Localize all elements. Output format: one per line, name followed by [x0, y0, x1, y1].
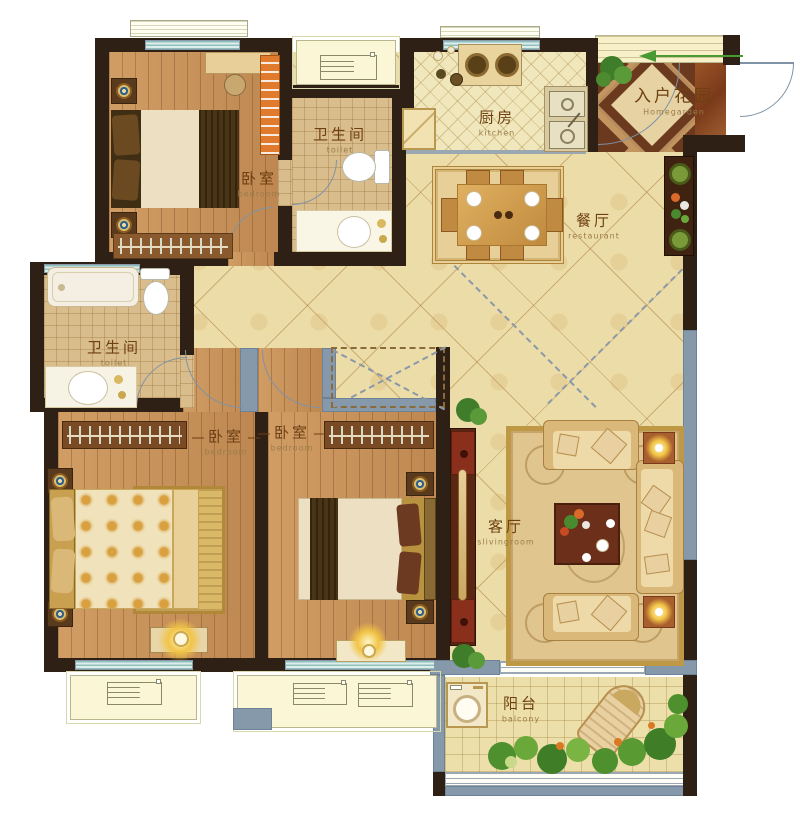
ac-unit-icon	[293, 683, 347, 705]
wall-segment	[95, 38, 109, 266]
balcony-sill	[445, 786, 697, 796]
reserved-cabinet-dashed-box	[331, 347, 445, 408]
bed-blanket	[199, 110, 239, 208]
room-label-homegarden: 入户花园Homegarden	[634, 82, 714, 117]
drum-icon	[453, 695, 481, 723]
room-subtitle: bedroom	[254, 444, 330, 453]
cup-icon	[596, 539, 609, 552]
room-label-bedroom-left: 卧室bedroom	[188, 426, 264, 457]
dining-table	[457, 184, 547, 246]
control-panel-icon	[473, 686, 483, 689]
ac-knob-icon	[156, 679, 161, 684]
ac-unit-icon	[358, 683, 413, 707]
bathroom-vanity	[296, 210, 392, 252]
sink-basin	[68, 371, 108, 405]
toilet-tank	[374, 150, 390, 184]
bed	[298, 498, 436, 600]
window	[683, 330, 697, 560]
kitchen-item	[433, 51, 443, 61]
bay-window-sill	[440, 26, 540, 38]
plant	[514, 736, 538, 760]
flower-icon	[681, 215, 689, 223]
plant	[596, 72, 611, 87]
toilet-bowl	[143, 281, 169, 315]
room-label-kitchen: 厨房kitchen	[479, 107, 515, 138]
plate-icon	[524, 191, 540, 207]
plant	[468, 652, 485, 669]
kitchen-item	[436, 69, 446, 79]
room-name: 卧室	[254, 424, 330, 442]
wall-segment	[180, 262, 194, 355]
table-lamp-icon	[173, 631, 189, 647]
bed	[111, 110, 239, 208]
fridge	[402, 108, 436, 150]
knob-icon	[460, 618, 468, 626]
pillar	[233, 708, 272, 730]
decor	[377, 219, 386, 228]
decor	[379, 235, 387, 243]
flower-icon	[671, 209, 681, 219]
decor	[118, 391, 126, 399]
flower-icon	[560, 527, 569, 536]
washing-machine	[446, 682, 488, 728]
plate-icon	[466, 225, 482, 241]
room-subtitle: balcony	[502, 715, 540, 724]
plant	[668, 694, 688, 714]
room-name: 客厅	[488, 518, 524, 536]
room-name: 卧室	[241, 170, 277, 188]
room-subtitle: bedroom	[188, 448, 264, 457]
bathroom-vanity	[45, 366, 137, 408]
room-name: 阳台	[503, 695, 539, 713]
room-subtitle: Homegarden	[634, 108, 714, 117]
flower-icon	[574, 509, 584, 519]
burner-icon	[495, 53, 519, 77]
plant	[614, 66, 632, 84]
stool	[224, 74, 246, 96]
kitchen-sink-unit	[544, 86, 588, 152]
entry-door-arc	[740, 63, 794, 117]
burner-icon	[465, 53, 489, 77]
wall-segment	[433, 772, 445, 796]
wall-segment	[292, 85, 406, 98]
drain-icon	[561, 98, 574, 111]
plant	[664, 714, 688, 738]
pillow	[50, 496, 75, 541]
pillow	[396, 551, 422, 595]
cup-icon	[606, 519, 615, 528]
knob-icon	[460, 450, 468, 458]
wardrobe	[324, 421, 434, 449]
room-subtitle: bedroom	[238, 190, 281, 199]
plate-icon	[466, 191, 482, 207]
room-name: 卫生间	[87, 339, 141, 357]
faucet-icon	[58, 284, 65, 291]
entry-arrow-line	[655, 55, 743, 57]
pillow	[112, 114, 141, 156]
flower-icon	[582, 521, 590, 529]
bathtub	[47, 267, 139, 307]
room-label-toilet-top: 卫生间toilet	[313, 124, 367, 155]
pillow	[556, 433, 579, 456]
pillow	[556, 600, 579, 623]
stove	[458, 44, 522, 86]
wall-segment	[683, 560, 697, 675]
cabinet-panel	[451, 599, 475, 643]
room-name: 入户花园	[634, 87, 714, 107]
entry-arrow-icon	[639, 50, 656, 62]
room-label-bedroom-mid: 卧室bedroom	[254, 422, 330, 453]
ac-knob-icon	[370, 52, 375, 57]
dining-chair	[546, 198, 563, 232]
pillow	[50, 548, 75, 593]
dining-chair	[500, 244, 524, 260]
wardrobe	[113, 233, 233, 259]
room-subtitle: toilet	[313, 146, 367, 155]
room-subtitle: toilet	[87, 359, 141, 368]
kitchen-item	[450, 73, 463, 86]
wall-segment	[30, 262, 44, 412]
bed-sheet	[141, 110, 199, 208]
room-name: 卫生间	[313, 126, 367, 144]
window	[145, 40, 240, 50]
room-label-living: 客厅slivingroom	[477, 516, 534, 547]
bed	[49, 489, 199, 609]
flower-icon	[648, 722, 655, 729]
plant	[566, 738, 590, 762]
ac-unit-icon	[107, 682, 162, 705]
balcony-window	[445, 772, 697, 786]
wall-segment	[723, 35, 740, 65]
lamp-icon	[655, 608, 663, 616]
wall-segment	[278, 38, 292, 160]
bed-headboard	[424, 498, 436, 600]
bed-floral-blanket	[75, 489, 173, 609]
dashed-cross-line	[332, 349, 445, 410]
sink-basin	[337, 216, 371, 248]
toilet-tank	[140, 268, 170, 280]
pillow	[396, 503, 422, 547]
table-lamp-icon	[362, 644, 376, 658]
room-label-toilet-left: 卫生间toilet	[87, 337, 141, 368]
ac-unit-icon	[320, 55, 377, 80]
wardrobe-rod	[329, 435, 429, 437]
plate-icon	[524, 225, 540, 241]
wardrobe	[62, 421, 187, 449]
dashed-cross-line	[333, 346, 446, 407]
bed-blanket	[310, 498, 338, 600]
room-subtitle: kitchen	[479, 129, 515, 138]
sofa	[636, 460, 684, 594]
lamp-icon	[655, 444, 663, 452]
nightstand	[406, 600, 434, 624]
room-name: 餐厅	[576, 212, 612, 230]
room-name: 卧室	[188, 428, 264, 446]
bowl-plant-icon	[669, 163, 691, 185]
room-name: 厨房	[479, 109, 515, 127]
floor-plan: 卧室bedroom 卫生间toilet 厨房kitchen 入户花园Homega…	[0, 0, 801, 838]
console-table	[664, 156, 694, 256]
drain-icon	[560, 129, 575, 144]
dining-chair	[466, 244, 490, 260]
pillow	[644, 553, 670, 574]
wardrobe-rod	[118, 246, 228, 248]
ac-knob-icon	[341, 680, 346, 685]
coffee-table	[554, 503, 620, 565]
decor	[114, 375, 123, 384]
room-label-bedroom-top: 卧室bedroom	[238, 168, 281, 199]
bed-foot-fold	[173, 489, 199, 609]
flower-icon	[556, 742, 564, 750]
room-label-balcony: 阳台balcony	[502, 693, 540, 724]
sofa	[543, 593, 639, 641]
bowl-plant-icon	[669, 229, 691, 251]
nightstand	[406, 472, 434, 496]
kitchen-item	[447, 46, 455, 54]
toilet-bowl	[342, 152, 376, 182]
bowl-icon	[494, 211, 502, 219]
room-subtitle: restaurant	[568, 232, 620, 241]
tv-cabinet	[450, 428, 476, 646]
plant	[592, 748, 618, 774]
plant	[470, 408, 487, 425]
plant	[505, 756, 517, 768]
room-subtitle: slivingroom	[477, 538, 534, 547]
bowl-icon	[505, 211, 513, 219]
plant	[618, 738, 646, 766]
dining-chair	[441, 198, 458, 232]
room-label-dining: 餐厅restaurant	[568, 210, 620, 241]
tv-icon	[458, 469, 467, 601]
flower-icon	[614, 738, 622, 746]
pillow	[112, 159, 141, 201]
cup-icon	[582, 553, 591, 562]
ac-knob-icon	[407, 680, 412, 685]
wall-segment	[278, 205, 292, 255]
nightstand	[111, 78, 137, 104]
sofa	[543, 420, 639, 470]
wardrobe-rod	[67, 435, 182, 437]
bookshelf	[260, 55, 280, 155]
flower-icon	[680, 201, 689, 210]
control-panel-icon	[450, 685, 462, 690]
bay-window-sill	[130, 20, 248, 37]
wall-segment	[683, 772, 697, 796]
flower-icon	[671, 193, 680, 202]
door-gap	[228, 252, 274, 266]
